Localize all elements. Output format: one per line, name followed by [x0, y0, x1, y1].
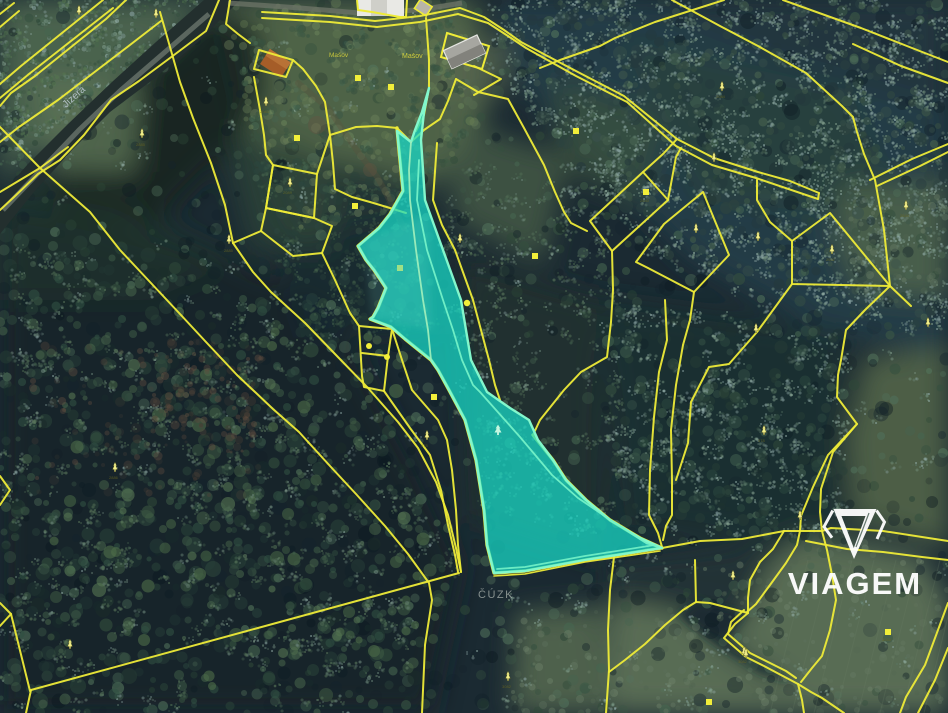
svg-text:Mašov: Mašov: [402, 53, 423, 60]
svg-text:2644: 2644: [900, 213, 910, 218]
svg-text:3055: 3055: [882, 637, 892, 642]
svg-text:Mašov: Mašov: [329, 52, 349, 59]
svg-text:2084: 2084: [716, 94, 726, 99]
svg-text:578: 578: [758, 438, 765, 443]
svg-text:3082: 3082: [738, 659, 748, 664]
svg-text:2886: 2886: [109, 475, 119, 480]
svg-text:ČÚZK: ČÚZK: [478, 588, 514, 601]
svg-text:2642: 2642: [826, 257, 836, 262]
svg-text:VIAGEM: VIAGEM: [788, 566, 922, 601]
svg-text:2885: 2885: [136, 142, 146, 147]
svg-text:2640: 2640: [640, 198, 650, 203]
svg-text:2885: 2885: [224, 248, 234, 253]
svg-text:2089: 2089: [283, 190, 293, 195]
svg-text:3082: 3082: [502, 684, 512, 689]
svg-text:578: 578: [421, 443, 428, 448]
svg-text:2083: 2083: [260, 109, 270, 114]
